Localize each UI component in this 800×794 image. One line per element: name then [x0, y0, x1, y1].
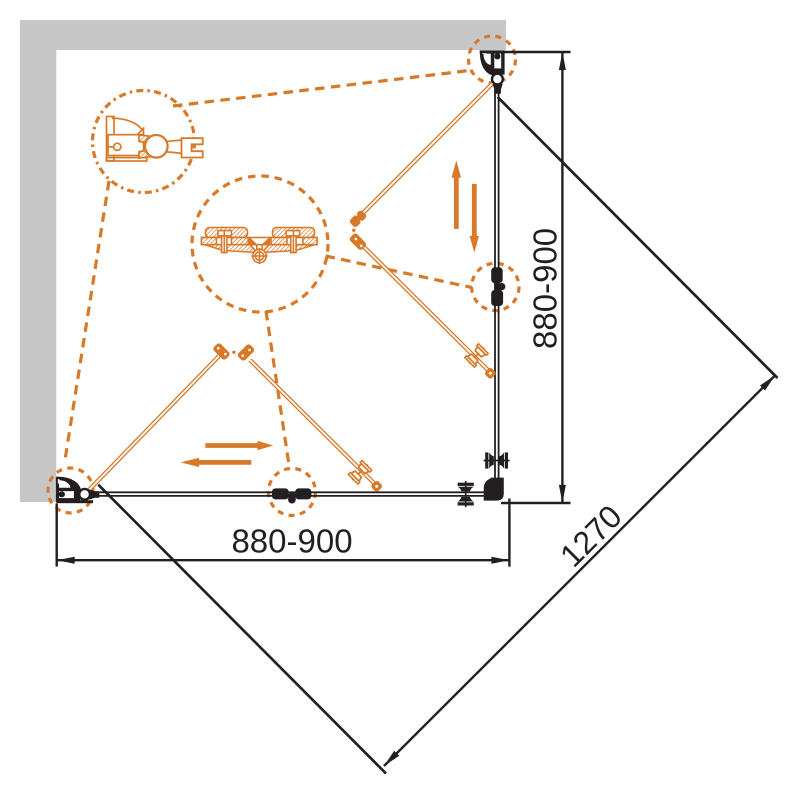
- svg-text:880-900: 880-900: [526, 228, 563, 349]
- svg-text:880-900: 880-900: [231, 523, 352, 560]
